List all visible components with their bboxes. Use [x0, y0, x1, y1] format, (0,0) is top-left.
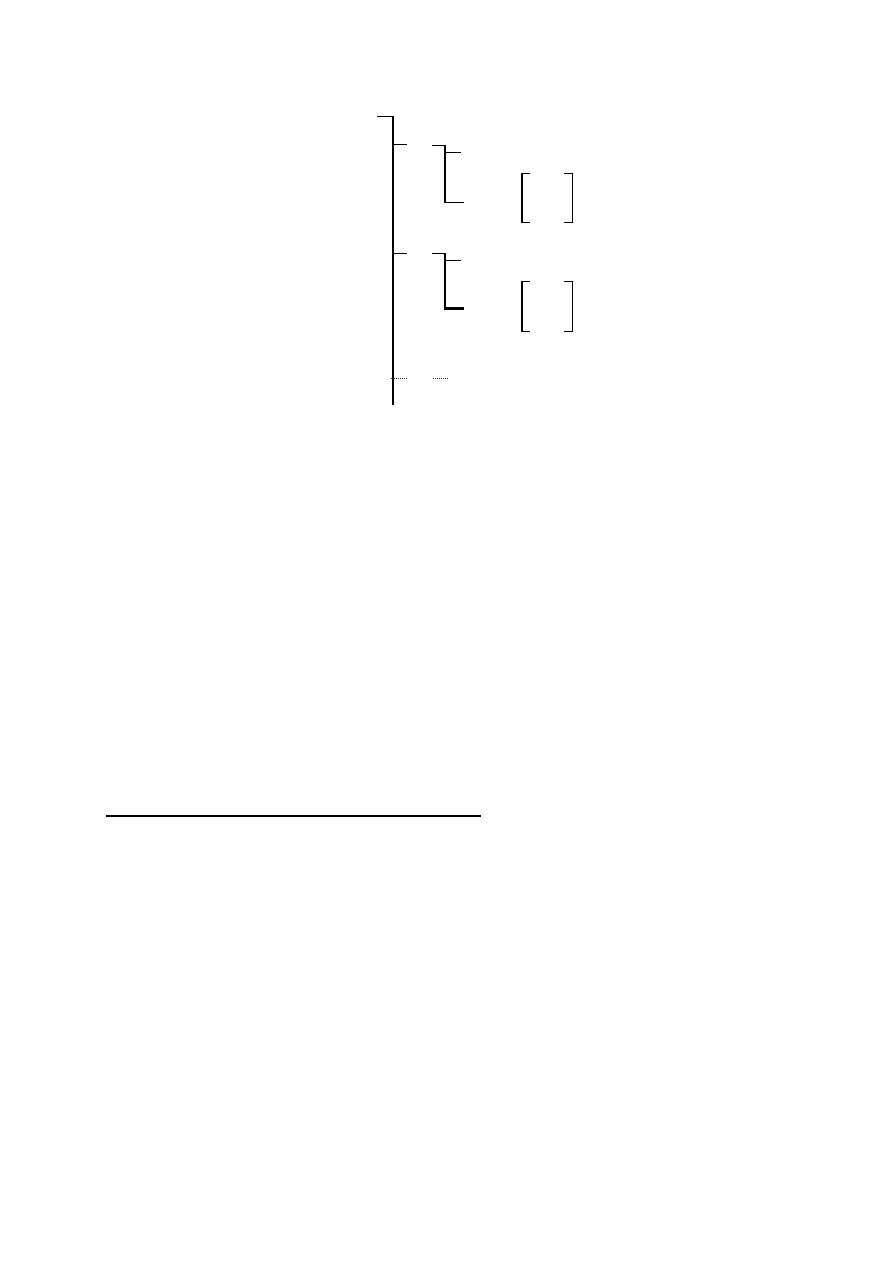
matrix2-left-bracket-bottom-serif — [521, 331, 530, 332]
document-page — [0, 0, 893, 1263]
matrix2-left-bracket-top-serif — [521, 281, 530, 282]
tree-and-matrices-diagram — [0, 0, 893, 1263]
footnote-rule — [106, 815, 481, 817]
matrix2-right-bracket-bottom-serif — [564, 331, 573, 332]
subtree-continuation-dotted-dash — [433, 378, 448, 379]
subtree-b-branch-tick — [444, 260, 461, 261]
matrix2-right-bracket-top-serif — [564, 281, 573, 282]
matrix1-right-bracket-top-serif — [564, 173, 573, 174]
tree-branch1-tick — [392, 144, 407, 145]
subtree-a-bottom-bar — [444, 202, 464, 203]
matrix2-left-bracket-stem — [521, 281, 523, 332]
subtree-a-vertical — [444, 145, 446, 203]
matrix2-right-bracket-stem — [572, 281, 574, 332]
tree-branch3-dotted-tick — [391, 378, 407, 379]
subtree-a-branch-tick — [444, 152, 461, 153]
tree-branch2-tick — [392, 253, 407, 254]
tree-trunk-vertical — [392, 116, 394, 405]
matrix1-right-bracket-bottom-serif — [564, 222, 573, 223]
matrix1-left-bracket-top-serif — [521, 173, 530, 174]
tree-root-top-bar — [377, 116, 393, 117]
subtree-b-bottom-bar-bold — [444, 307, 464, 310]
subtree-b-vertical — [444, 253, 446, 309]
matrix1-left-bracket-bottom-serif — [521, 222, 530, 223]
matrix1-left-bracket-stem — [521, 173, 523, 223]
matrix1-right-bracket-stem — [572, 173, 574, 223]
